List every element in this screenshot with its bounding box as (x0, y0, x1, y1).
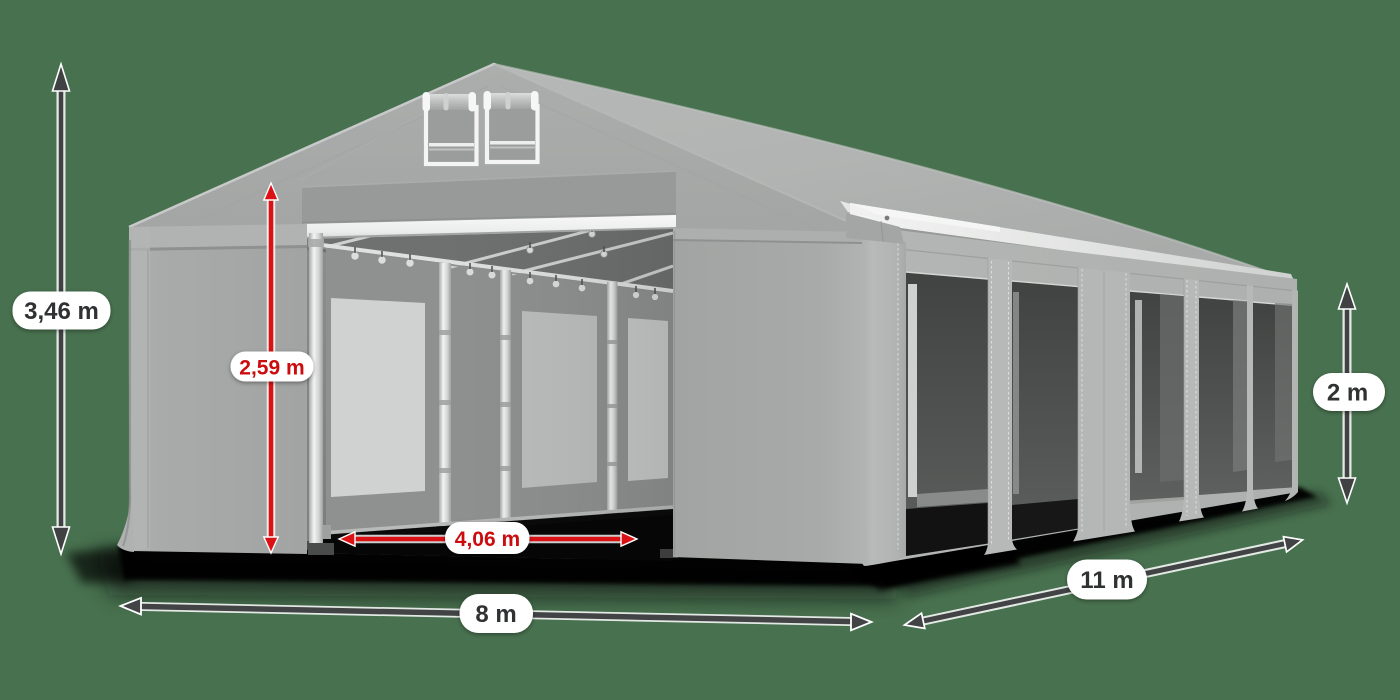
svg-text:11 m: 11 m (1080, 567, 1133, 594)
svg-text:3,46 m: 3,46 m (24, 298, 99, 325)
svg-text:2 m: 2 m (1327, 380, 1368, 407)
svg-text:4,06 m: 4,06 m (455, 528, 520, 551)
svg-text:8 m: 8 m (475, 601, 516, 628)
svg-text:2,59 m: 2,59 m (239, 357, 304, 380)
